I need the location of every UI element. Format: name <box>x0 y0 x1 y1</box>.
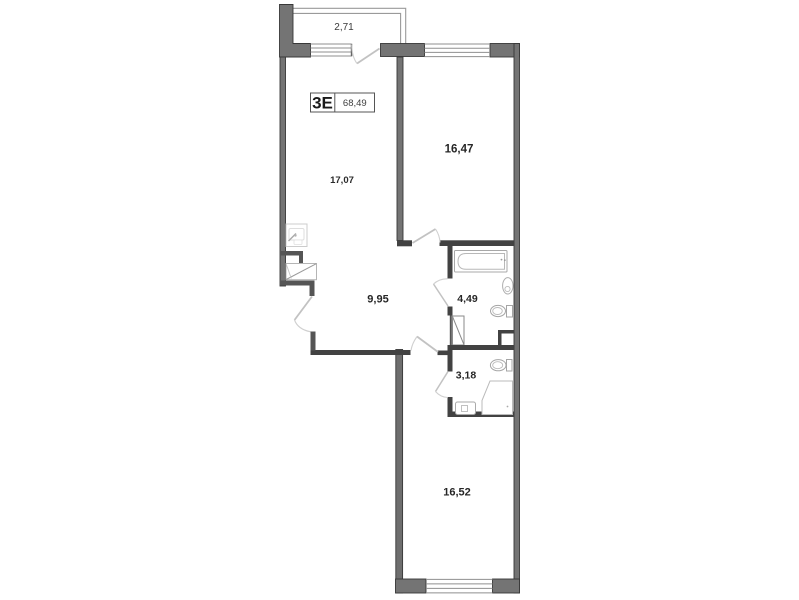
svg-text:2,71: 2,71 <box>334 22 354 33</box>
svg-text:68,49: 68,49 <box>343 98 367 109</box>
svg-text:17,07: 17,07 <box>330 175 354 186</box>
svg-text:3Е: 3Е <box>312 94 333 113</box>
svg-text:9,95: 9,95 <box>367 294 388 306</box>
svg-text:16,52: 16,52 <box>443 487 471 499</box>
svg-text:3,18: 3,18 <box>456 370 477 382</box>
svg-text:4,49: 4,49 <box>457 293 478 305</box>
svg-text:16,47: 16,47 <box>445 144 474 156</box>
